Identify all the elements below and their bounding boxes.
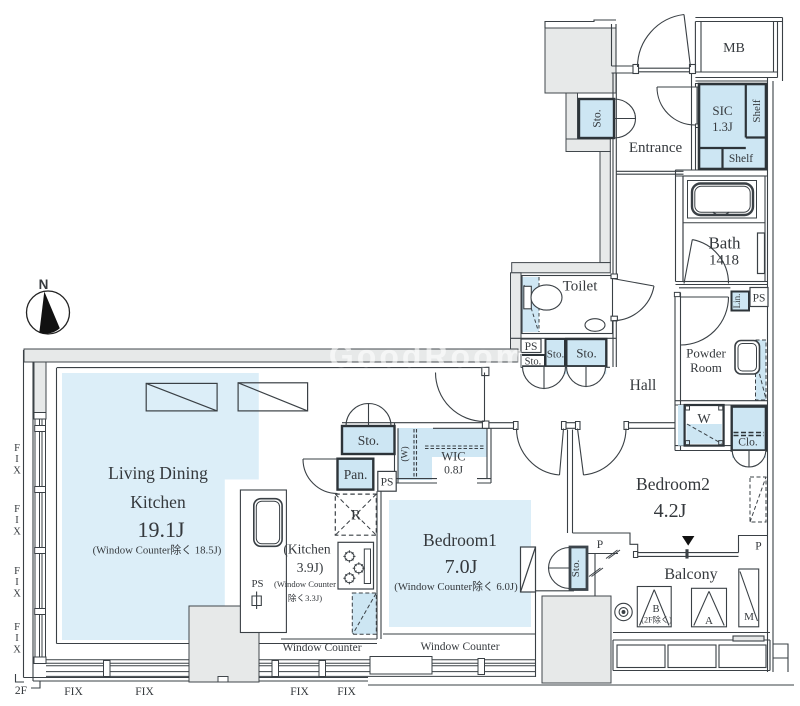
svg-text:N: N	[39, 277, 49, 292]
svg-text:I: I	[15, 454, 19, 465]
svg-text:F: F	[14, 622, 20, 633]
svg-text:19.1J: 19.1J	[137, 517, 185, 542]
svg-text:I: I	[15, 577, 19, 588]
svg-text:PS: PS	[381, 477, 394, 489]
svg-text:MB: MB	[723, 41, 745, 56]
svg-text:Sto.: Sto.	[576, 346, 597, 361]
svg-text:Living Dining: Living Dining	[108, 463, 208, 483]
svg-text:Hall: Hall	[630, 377, 657, 394]
svg-text:I: I	[15, 633, 19, 644]
svg-text:Entrance: Entrance	[629, 140, 683, 156]
svg-text:FIX: FIX	[290, 686, 309, 698]
svg-text:Sto.: Sto.	[358, 433, 379, 448]
svg-text:Sto.: Sto.	[525, 357, 542, 368]
svg-text:4.2J: 4.2J	[654, 500, 687, 522]
svg-text:P: P	[597, 539, 603, 551]
svg-text:0.8J: 0.8J	[444, 465, 463, 477]
svg-text:Shelf: Shelf	[729, 153, 753, 165]
svg-text:Sto.: Sto.	[592, 109, 604, 127]
svg-text:PS: PS	[525, 341, 538, 353]
svg-text:(Window Counter: (Window Counter	[274, 579, 336, 589]
svg-text:(W): (W)	[400, 446, 411, 461]
svg-text:M: M	[744, 611, 754, 623]
svg-text:1418: 1418	[709, 253, 739, 269]
svg-text:Shelf: Shelf	[751, 99, 763, 123]
svg-text:X: X	[13, 465, 21, 476]
svg-text:PS: PS	[251, 578, 263, 590]
svg-text:Sto.: Sto.	[570, 560, 582, 578]
svg-text:7.0J: 7.0J	[445, 556, 478, 578]
svg-text:SIC: SIC	[712, 103, 732, 118]
svg-text:FIX: FIX	[64, 686, 83, 698]
svg-text:F: F	[14, 504, 20, 515]
svg-text:Lin.: Lin.	[732, 294, 742, 309]
svg-text:W: W	[697, 412, 711, 427]
svg-text:2F: 2F	[15, 685, 27, 697]
svg-text:X: X	[13, 588, 21, 599]
svg-text:A: A	[705, 615, 713, 627]
svg-text:Clo.: Clo.	[738, 437, 758, 449]
svg-text:F: F	[14, 443, 20, 454]
svg-text:除く3.3J): 除く3.3J)	[288, 592, 322, 603]
svg-text:3.9J): 3.9J)	[297, 560, 324, 575]
svg-text:(2F除く): (2F除く)	[641, 615, 672, 625]
svg-text:Bath: Bath	[708, 234, 741, 253]
svg-text:WIC: WIC	[441, 450, 465, 464]
svg-text:1.3J: 1.3J	[712, 120, 733, 134]
svg-text:P: P	[755, 541, 761, 553]
svg-text:Room: Room	[690, 360, 722, 375]
svg-text:Window Counter: Window Counter	[420, 641, 499, 653]
svg-text:Balcony: Balcony	[664, 566, 717, 583]
svg-text:FIX: FIX	[135, 686, 154, 698]
svg-text:PS: PS	[753, 293, 766, 305]
svg-text:(Window Counter除く 18.5J): (Window Counter除く 18.5J)	[93, 543, 222, 557]
svg-text:I: I	[15, 515, 19, 526]
svg-text:Bedroom2: Bedroom2	[636, 474, 710, 494]
svg-text:(Kitchen: (Kitchen	[283, 542, 330, 557]
svg-text:Window Counter: Window Counter	[282, 642, 361, 654]
svg-text:Sto.: Sto.	[547, 349, 565, 361]
svg-text:Toilet: Toilet	[563, 279, 599, 295]
svg-text:Pan.: Pan.	[344, 467, 368, 482]
svg-text:B: B	[652, 604, 659, 615]
svg-text:GoodRoom: GoodRoom	[329, 338, 527, 374]
svg-text:F: F	[14, 566, 20, 577]
svg-text:R: R	[351, 508, 361, 524]
svg-text:X: X	[13, 644, 21, 655]
svg-text:Bedroom1: Bedroom1	[423, 530, 497, 550]
svg-text:FIX: FIX	[337, 686, 356, 698]
svg-text:(Window Counter除く 6.0J): (Window Counter除く 6.0J)	[394, 579, 518, 593]
svg-text:X: X	[13, 526, 21, 537]
svg-text:Powder: Powder	[686, 346, 726, 361]
svg-text:Kitchen: Kitchen	[130, 492, 186, 512]
